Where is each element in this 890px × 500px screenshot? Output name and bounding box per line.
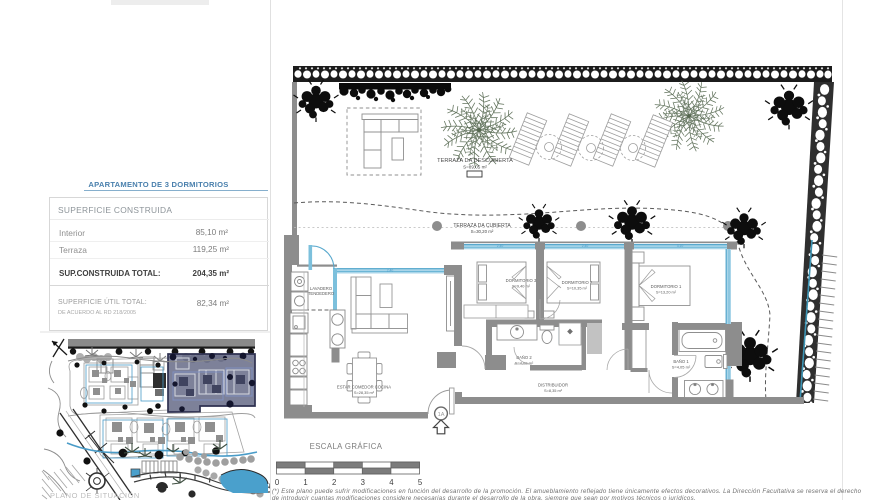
svg-text:S=13,20 m²: S=13,20 m²	[656, 290, 677, 295]
svg-text:2,40: 2,40	[497, 244, 504, 248]
svg-text:de introducir cuantas modifica: de introducir cuantas modificaciones con…	[272, 495, 696, 500]
svg-text:S=10,35 m²: S=10,35 m²	[567, 286, 588, 291]
svg-text:DORMITORIO 1: DORMITORIO 1	[651, 284, 682, 289]
svg-text:3: 3	[361, 478, 365, 487]
svg-text:S=8,35 m²: S=8,35 m²	[544, 388, 563, 393]
svg-text:1: 1	[303, 478, 307, 487]
svg-text:2,40: 2,40	[582, 244, 589, 248]
svg-text:1A: 1A	[438, 412, 445, 418]
svg-text:0: 0	[275, 478, 280, 487]
svg-text:DORMITORIO 3: DORMITORIO 3	[506, 278, 537, 283]
svg-text:2: 2	[332, 478, 336, 487]
svg-text:S=4,05 m²: S=4,05 m²	[672, 365, 691, 370]
svg-text:S=9,40 m²: S=9,40 m²	[512, 284, 531, 289]
svg-text:DISTRIBUIDOR: DISTRIBUIDOR	[538, 383, 568, 388]
svg-text:TERRAZA DA DESCUBIERTA: TERRAZA DA DESCUBIERTA	[437, 158, 513, 164]
svg-text:ESCALA GRÁFICA: ESCALA GRÁFICA	[310, 442, 383, 451]
svg-text:DORMITORIO 2: DORMITORIO 2	[562, 280, 593, 285]
svg-text:S=30,20 m²: S=30,20 m²	[471, 229, 494, 234]
svg-text:BAÑO 1: BAÑO 1	[673, 359, 689, 364]
svg-text:5: 5	[418, 478, 423, 487]
svg-text:2,40: 2,40	[387, 269, 394, 273]
svg-text:3,10: 3,10	[677, 244, 684, 248]
svg-text:S=89,05 m²: S=89,05 m²	[463, 165, 487, 170]
svg-text:S=28,35 m²: S=28,35 m²	[354, 390, 375, 395]
svg-text:TENDEDERO: TENDEDERO	[308, 291, 335, 296]
svg-text:(*) Este plano puede sufrir mo: (*) Este plano puede sufrir modificacion…	[272, 488, 862, 495]
svg-text:4: 4	[389, 478, 394, 487]
svg-text:ESTAR COMEDOR COCINA: ESTAR COMEDOR COCINA	[337, 385, 391, 390]
